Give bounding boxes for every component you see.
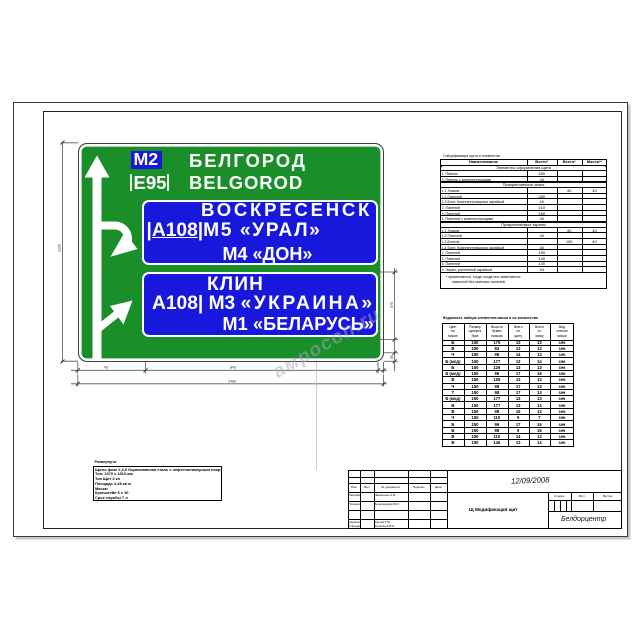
- svg-text:845: 845: [230, 366, 236, 370]
- svg-text:675: 675: [390, 302, 394, 308]
- svg-text:45: 45: [104, 366, 108, 370]
- svg-text:2460: 2460: [228, 380, 236, 384]
- svg-text:85: 85: [390, 355, 394, 359]
- svg-text:амросоп.ru: амросоп.ru: [270, 304, 385, 383]
- svg-text:2100: 2100: [58, 244, 62, 252]
